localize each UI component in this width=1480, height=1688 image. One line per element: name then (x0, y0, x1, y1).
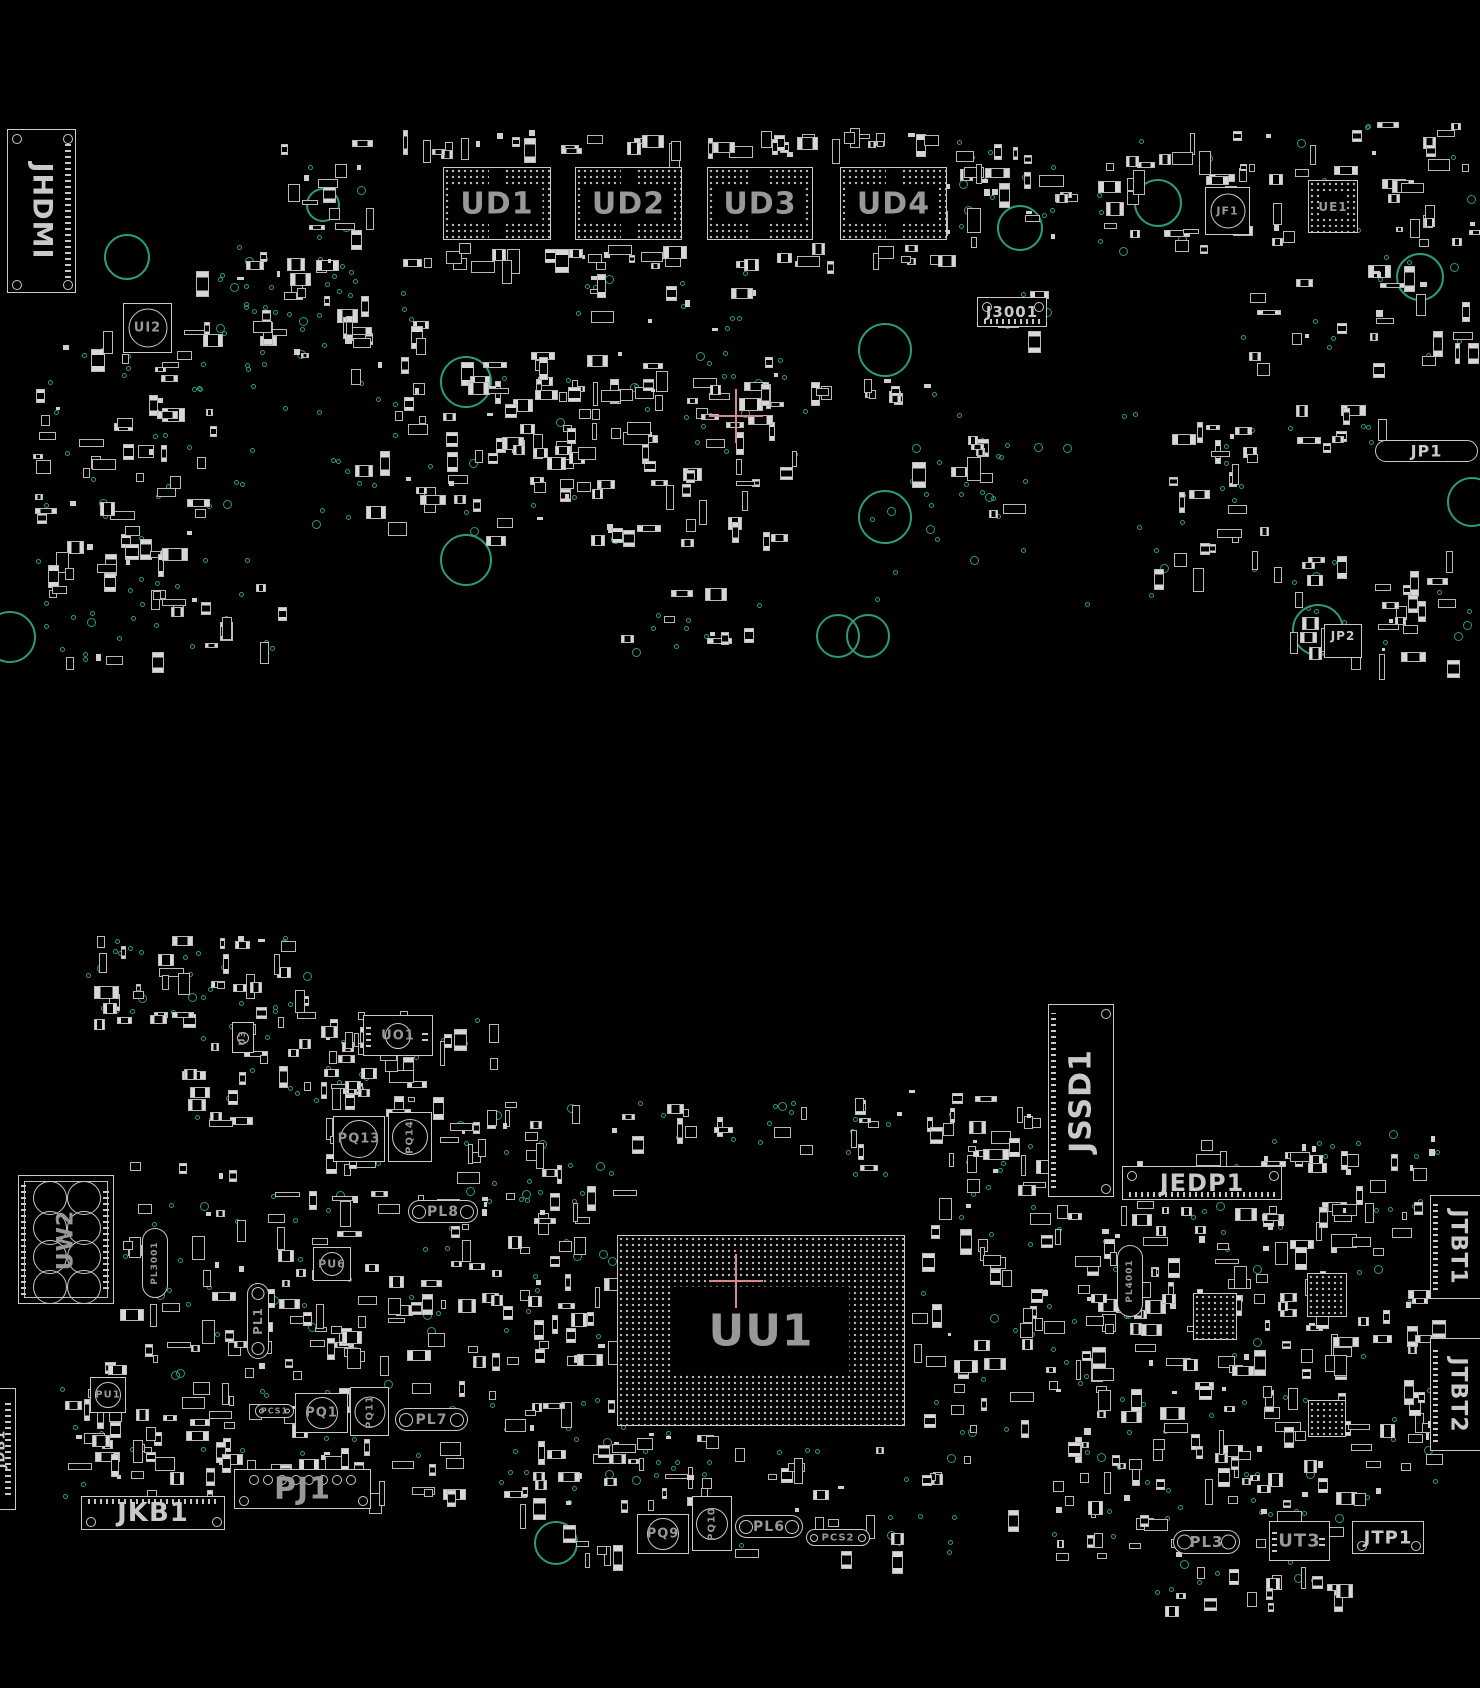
component-PU1[interactable]: PU1 (90, 1377, 126, 1413)
designator-UE1: UE1 (1318, 200, 1347, 214)
via-dot (1047, 1304, 1052, 1309)
via-dot (246, 367, 251, 372)
small-component (1426, 1454, 1443, 1465)
small-component (981, 1398, 987, 1411)
component-bga[interactable] (1193, 1293, 1237, 1340)
via-dot (986, 1185, 991, 1190)
designator-PQ13: PQ13 (338, 1132, 381, 1147)
designator-PL6: PL6 (753, 1519, 785, 1535)
small-component (201, 602, 211, 615)
small-component (1197, 422, 1203, 443)
component-PQ10[interactable]: PQ10 (692, 1496, 732, 1551)
small-component (416, 487, 427, 494)
small-component (851, 1130, 857, 1149)
component-JF1[interactable]: JF1 (1205, 187, 1250, 235)
component-PL8[interactable]: PL8 (408, 1200, 478, 1223)
component-UD2[interactable]: UD2 (575, 167, 682, 240)
small-component (623, 530, 634, 547)
small-component (186, 1431, 209, 1441)
designator-PU6: PU6 (318, 1258, 346, 1271)
small-component (557, 1165, 562, 1184)
small-component (591, 535, 606, 546)
via-dot (300, 1451, 305, 1456)
small-component (123, 1241, 134, 1250)
component-JDB1[interactable]: JDB1 (0, 1388, 16, 1510)
component-PL4001[interactable]: PL4001 (1117, 1245, 1143, 1317)
small-component (1130, 1323, 1143, 1336)
small-component (158, 954, 174, 966)
small-component (97, 564, 117, 573)
solder-pad (1261, 1509, 1268, 1515)
solder-pad (1244, 1354, 1249, 1360)
small-component (1254, 1350, 1266, 1375)
small-component (560, 479, 573, 489)
small-component (739, 398, 763, 411)
solder-pad (415, 388, 419, 394)
small-component (297, 1012, 316, 1019)
small-component (969, 1121, 986, 1134)
small-component (664, 616, 675, 622)
via-dot (1042, 213, 1047, 218)
small-component (446, 432, 458, 447)
small-component (473, 499, 481, 512)
via-dot (737, 316, 742, 321)
small-component (924, 135, 938, 146)
small-component (1181, 1207, 1192, 1216)
component-JTBT2[interactable]: JTBT2 (1430, 1338, 1480, 1451)
component-PL3[interactable]: PL3 (1173, 1530, 1240, 1554)
component-PQ9[interactable]: PQ9 (637, 1514, 689, 1554)
component-PQ14[interactable]: PQ14 (388, 1112, 432, 1162)
small-component (222, 1454, 231, 1473)
via-dot (632, 648, 641, 657)
small-component (35, 494, 43, 500)
small-component (571, 1313, 587, 1327)
small-component (1337, 556, 1347, 579)
component-J3001[interactable]: J3001 (977, 297, 1047, 327)
small-component (591, 311, 615, 323)
component-PQ1[interactable]: PQ1 (295, 1393, 348, 1433)
component-UD3[interactable]: UD3 (707, 167, 813, 240)
via-dot (264, 1393, 269, 1398)
small-component (1219, 1430, 1224, 1454)
component-UI2[interactable]: UI2 (123, 303, 172, 353)
small-component (1308, 557, 1326, 563)
small-component (489, 1024, 499, 1043)
small-component (574, 1237, 586, 1255)
solder-pad (237, 277, 244, 280)
pin-row (1272, 1530, 1277, 1552)
small-component (952, 1093, 963, 1105)
small-component (429, 1464, 436, 1476)
small-component (1269, 174, 1283, 185)
via-dot (934, 1400, 939, 1405)
boardview-canvas[interactable]: JHDMIUD1UD2UD3UD4UI2J3001JF1UE1JP1JP2JSS… (0, 0, 1480, 1688)
small-component (428, 1333, 445, 1346)
via-dot (470, 527, 479, 536)
small-component (99, 953, 106, 973)
small-component (613, 1190, 637, 1196)
designator-PQ14: PQ14 (405, 1120, 416, 1154)
solder-pad (982, 179, 988, 183)
small-component (358, 1089, 370, 1097)
small-component (1098, 1390, 1111, 1411)
small-component (663, 246, 688, 258)
small-component (983, 1149, 1009, 1160)
small-component (366, 208, 375, 229)
small-component (340, 1201, 351, 1227)
solder-pad (503, 1123, 507, 1129)
small-component (1205, 1479, 1213, 1504)
component-PJ1[interactable]: PJ1 (234, 1469, 371, 1509)
via-dot (87, 618, 96, 627)
small-component (637, 1438, 652, 1450)
via-dot (1303, 1398, 1308, 1403)
small-component (281, 941, 296, 952)
via-dot (409, 1295, 414, 1300)
via-dot (1361, 424, 1366, 429)
via-dot (1435, 1150, 1440, 1155)
small-component (971, 237, 977, 248)
small-component (536, 1143, 544, 1168)
small-component (469, 1263, 485, 1271)
small-component (1280, 1293, 1297, 1302)
component-JP1[interactable]: JP1 (1375, 440, 1478, 462)
component-UD4[interactable]: UD4 (840, 167, 947, 240)
via-dot (656, 1460, 661, 1465)
via-dot (1063, 444, 1072, 453)
component-JP2[interactable]: JP2 (1324, 624, 1362, 658)
small-component (682, 484, 692, 498)
small-component (1232, 464, 1239, 486)
small-component (665, 258, 682, 267)
via-dot (731, 1137, 736, 1142)
designator-JDB1: JDB1 (0, 1430, 9, 1469)
small-component (188, 1099, 205, 1111)
via-dot (1111, 1534, 1116, 1539)
small-component (1030, 1213, 1051, 1226)
via-dot (1120, 1397, 1125, 1402)
component-PL6[interactable]: PL6 (735, 1515, 803, 1538)
solder-pad (1172, 1391, 1178, 1394)
via-dot (947, 1454, 956, 1463)
small-component (444, 1034, 452, 1048)
small-component (1348, 1424, 1370, 1430)
small-component (597, 274, 607, 298)
small-component (1118, 1463, 1126, 1468)
small-component (1418, 1392, 1425, 1403)
component-bga[interactable] (1308, 1400, 1346, 1437)
small-component (395, 411, 403, 421)
small-component (1234, 1266, 1246, 1289)
small-component (422, 1294, 433, 1315)
small-component (125, 544, 139, 560)
small-component (290, 273, 311, 286)
via-dot (1052, 1532, 1057, 1537)
solder-pad (1027, 1114, 1032, 1118)
small-component (371, 1191, 388, 1197)
via-dot (288, 1002, 293, 1007)
solder-pad (536, 1280, 541, 1285)
designator-UI2: UI2 (134, 321, 161, 336)
small-component (1002, 1270, 1011, 1287)
small-component (323, 186, 335, 203)
small-component (1297, 437, 1321, 445)
small-component (421, 1280, 442, 1286)
corner-pad (12, 280, 22, 290)
small-component (774, 1127, 791, 1138)
solder-pad (1302, 1144, 1306, 1151)
small-component (347, 1348, 360, 1369)
small-component (1156, 1226, 1166, 1235)
via-dot (1169, 1587, 1174, 1592)
small-component (859, 134, 870, 139)
small-component (92, 1435, 110, 1447)
small-component (1201, 1140, 1213, 1152)
small-component (534, 482, 546, 493)
component-JKB1[interactable]: JKB1 (81, 1496, 225, 1530)
designator-PL3001: PL3001 (150, 1241, 160, 1284)
via-dot (1306, 606, 1311, 611)
component-bga[interactable] (1307, 1273, 1347, 1317)
via-dot (686, 618, 691, 623)
component-JSSD1[interactable]: JSSD1 (1048, 1004, 1114, 1197)
small-component (1081, 1442, 1089, 1448)
small-component (534, 1320, 543, 1340)
small-component (1418, 601, 1426, 622)
small-component (1097, 1411, 1107, 1419)
small-component (288, 184, 299, 202)
via-dot (81, 1482, 86, 1487)
via-dot (83, 652, 88, 657)
via-dot (1202, 1209, 1207, 1214)
component-U3[interactable]: U3 (232, 1022, 254, 1053)
small-component (1140, 1515, 1149, 1526)
via-dot (445, 1246, 450, 1251)
small-component (596, 262, 606, 269)
via-dot (651, 626, 656, 631)
solder-pad (1389, 619, 1393, 623)
small-component (1053, 1481, 1064, 1493)
small-component (1257, 1485, 1270, 1494)
small-component (278, 1017, 284, 1028)
small-component (179, 1163, 187, 1174)
small-component (1132, 1214, 1152, 1227)
pin-row (21, 1184, 26, 1295)
small-component (705, 588, 727, 600)
small-component (1024, 155, 1032, 164)
solder-pad (666, 1436, 671, 1440)
small-component (288, 1049, 299, 1058)
designator-PL7: PL7 (416, 1412, 448, 1428)
small-component (278, 1250, 295, 1263)
solder-pad (1266, 134, 1271, 138)
small-component (1272, 238, 1283, 246)
via-dot (201, 1447, 206, 1452)
via-dot (234, 480, 239, 485)
via-dot (128, 946, 133, 951)
small-component (533, 448, 548, 458)
small-component (592, 423, 597, 439)
small-component (1468, 343, 1479, 363)
small-component (486, 536, 506, 546)
small-component (994, 144, 1002, 160)
small-component (1024, 172, 1030, 189)
small-component (1351, 1444, 1372, 1450)
small-component (1105, 1324, 1114, 1335)
via-dot (192, 387, 197, 392)
small-component (195, 509, 206, 518)
small-component (1129, 1543, 1141, 1549)
small-component (318, 179, 338, 188)
component-PCS2[interactable]: PCS2 (806, 1529, 870, 1546)
component-JHDMI[interactable]: JHDMI (7, 129, 76, 293)
via-dot (533, 1274, 538, 1279)
small-component (827, 261, 834, 274)
solder-pad (484, 1202, 487, 1207)
small-component (1365, 1203, 1374, 1222)
component-PL1[interactable]: PL1 (247, 1283, 269, 1359)
small-component (310, 1340, 324, 1347)
component-UU1[interactable]: UU1 (617, 1235, 905, 1426)
small-component (1410, 219, 1420, 237)
small-component (1193, 568, 1204, 592)
small-component (1080, 1473, 1088, 1483)
small-component (1209, 544, 1217, 554)
small-component (970, 1425, 977, 1433)
component-PQ13[interactable]: PQ13 (333, 1116, 385, 1162)
small-component (1039, 175, 1064, 187)
small-component (121, 946, 127, 959)
designator-JTP1: JTP1 (1364, 1527, 1413, 1548)
inductor-end-pad (412, 1205, 426, 1219)
small-component (587, 1186, 596, 1211)
via-dot (1127, 1430, 1132, 1435)
small-component (1257, 363, 1269, 377)
via-dot (887, 507, 896, 516)
small-component (312, 1238, 328, 1245)
small-component (1092, 1347, 1106, 1369)
via-dot (175, 584, 180, 589)
small-component (1235, 427, 1252, 434)
small-component (1403, 625, 1418, 634)
small-component (65, 1401, 82, 1411)
via-dot (331, 458, 336, 463)
small-component (1401, 183, 1424, 193)
small-component (1065, 1496, 1074, 1506)
small-component (309, 225, 325, 230)
small-component (104, 573, 115, 592)
small-component (1162, 1207, 1170, 1213)
component-PCS1[interactable]: PCS1 (255, 1404, 294, 1418)
small-component (327, 1338, 335, 1360)
small-component (858, 1144, 865, 1161)
small-component (1106, 163, 1114, 171)
component-UW2[interactable]: UW2 (18, 1175, 114, 1304)
solder-pad (1420, 282, 1427, 286)
via-dot (1084, 1374, 1089, 1379)
via-dot (846, 1150, 851, 1155)
solder-pad (973, 1140, 976, 1143)
solder-pad (1331, 1248, 1338, 1253)
small-component (512, 137, 520, 147)
small-component (1153, 1439, 1165, 1450)
via-dot (1433, 1479, 1438, 1484)
small-component (525, 1410, 535, 1416)
small-component (1401, 1463, 1411, 1472)
via-dot (195, 1115, 200, 1120)
small-component (559, 392, 568, 402)
component-UD1[interactable]: UD1 (443, 167, 551, 240)
inductor-end-pad (785, 1520, 799, 1534)
small-component (136, 1409, 149, 1422)
small-component (1334, 166, 1358, 175)
solder-pad (992, 189, 998, 195)
component-UO1[interactable]: UO1 (363, 1015, 433, 1056)
via-dot (48, 380, 53, 385)
via-dot (971, 1192, 976, 1197)
small-component (503, 1306, 512, 1321)
small-component (1183, 1359, 1198, 1371)
component-UT3[interactable]: UT3 (1269, 1521, 1330, 1561)
small-component (683, 1109, 690, 1117)
solder-pad (277, 271, 280, 277)
via-dot (1366, 124, 1371, 129)
via-dot (1209, 1413, 1214, 1418)
via-dot (957, 140, 962, 145)
small-component (736, 481, 755, 486)
small-component (94, 986, 118, 999)
small-component (1312, 1576, 1324, 1589)
designator-UT3: UT3 (1278, 1531, 1320, 1552)
solder-pad (1051, 234, 1055, 239)
component-PL7[interactable]: PL7 (395, 1408, 468, 1431)
component-PQ11[interactable]: PQ11 (350, 1387, 389, 1436)
solder-pad (215, 1262, 219, 1268)
small-component (1354, 1493, 1367, 1506)
origin-crosshair-horizontal (709, 415, 763, 417)
solder-pad (1318, 1461, 1323, 1467)
via-dot (990, 1314, 999, 1323)
small-component (297, 288, 307, 298)
small-component (525, 1132, 539, 1141)
solder-pad (1264, 1156, 1268, 1161)
small-component (1323, 443, 1331, 453)
component-PL3001[interactable]: PL3001 (142, 1228, 168, 1298)
small-component (256, 1007, 267, 1018)
small-component (1300, 632, 1317, 643)
small-component (1025, 215, 1040, 222)
solder-pad (187, 531, 192, 535)
small-component (163, 1415, 176, 1421)
small-component (1318, 1478, 1327, 1493)
small-component (702, 1478, 712, 1488)
small-component (543, 1403, 565, 1409)
component-PU6[interactable]: PU6 (313, 1247, 351, 1281)
via-dot (90, 611, 95, 616)
component-JTBT1[interactable]: JTBT1 (1430, 1195, 1480, 1299)
small-component (228, 1090, 238, 1105)
component-UE1[interactable]: UE1 (1308, 180, 1358, 233)
small-component (1426, 145, 1437, 157)
solder-pad (1343, 1208, 1346, 1214)
component-JEDP1[interactable]: JEDP1 (1122, 1166, 1282, 1200)
via-dot (789, 1110, 794, 1115)
component-JTP1[interactable]: JTP1 (1352, 1521, 1424, 1554)
via-dot (230, 283, 239, 292)
small-component (914, 1344, 922, 1363)
via-dot (538, 1190, 543, 1195)
